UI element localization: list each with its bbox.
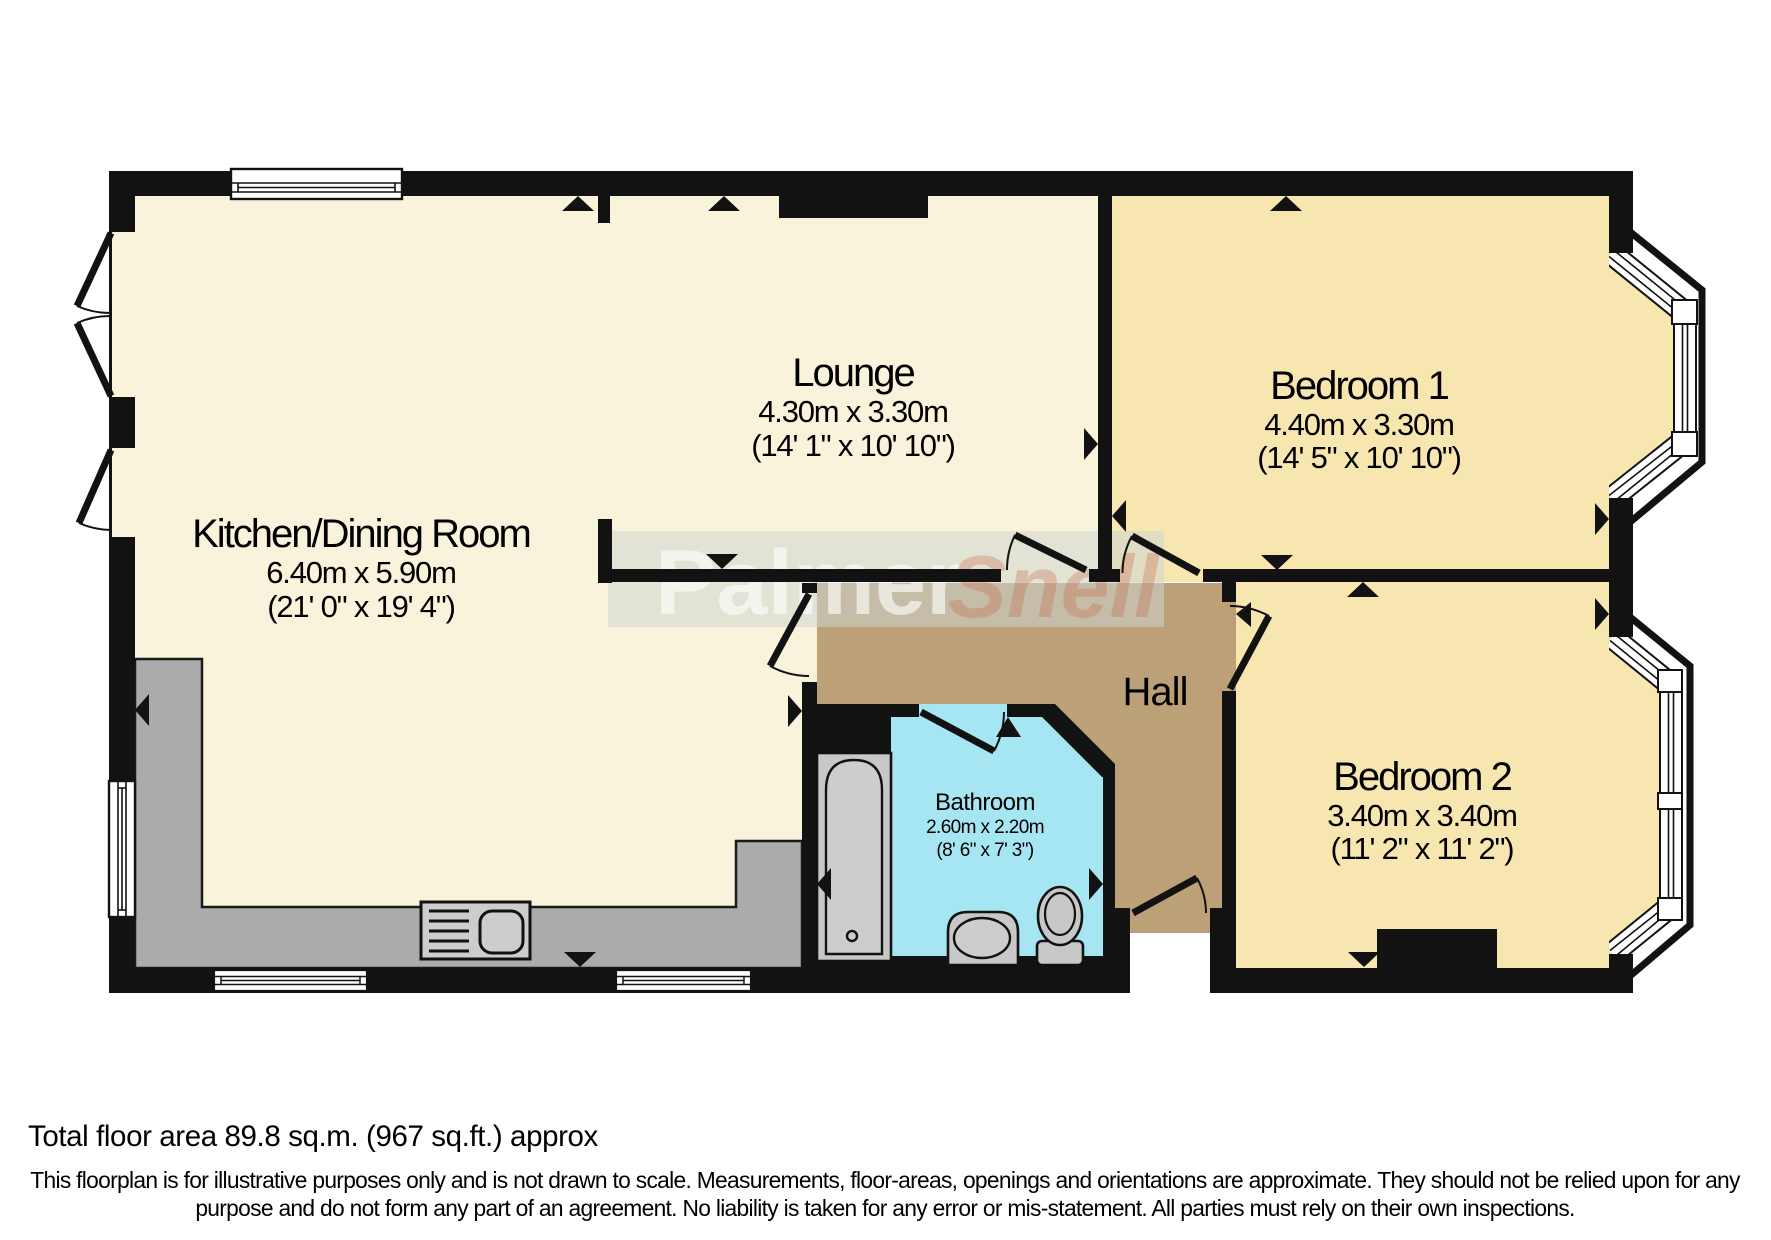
svg-text:Total floor area 89.8 sq.m. (9: Total floor area 89.8 sq.m. (967 sq.ft.)… (28, 1120, 599, 1153)
svg-text:Hall: Hall (1123, 670, 1188, 714)
svg-text:This floorplan is for illustra: This floorplan is for illustrative purpo… (30, 1167, 1741, 1193)
svg-text:(8' 6" x 7' 3"): (8' 6" x 7' 3") (936, 840, 1034, 861)
svg-text:Kitchen/Dining Room: Kitchen/Dining Room (192, 512, 530, 556)
svg-text:4.30m x 3.30m: 4.30m x 3.30m (758, 394, 947, 429)
svg-text:Bedroom 2: Bedroom 2 (1333, 755, 1511, 799)
svg-text:Lounge: Lounge (792, 351, 914, 395)
svg-text:2.60m x 2.20m: 2.60m x 2.20m (926, 817, 1044, 838)
svg-text:3.40m x 3.40m: 3.40m x 3.40m (1327, 798, 1516, 833)
svg-text:4.40m x 3.30m: 4.40m x 3.30m (1264, 407, 1453, 442)
svg-text:(11' 2" x 11' 2"): (11' 2" x 11' 2") (1331, 831, 1514, 866)
svg-text:(14' 1" x 10' 10"): (14' 1" x 10' 10") (751, 428, 955, 463)
svg-text:(14' 5" x 10' 10"): (14' 5" x 10' 10") (1257, 440, 1461, 475)
svg-text:(21' 0" x 19' 4"): (21' 0" x 19' 4") (267, 589, 455, 624)
svg-text:Bathroom: Bathroom (935, 789, 1035, 816)
svg-text:6.40m x 5.90m: 6.40m x 5.90m (266, 555, 455, 590)
svg-text:Bedroom 1: Bedroom 1 (1270, 364, 1448, 408)
svg-text:purpose and do not form any pa: purpose and do not form any part of an a… (195, 1195, 1574, 1221)
